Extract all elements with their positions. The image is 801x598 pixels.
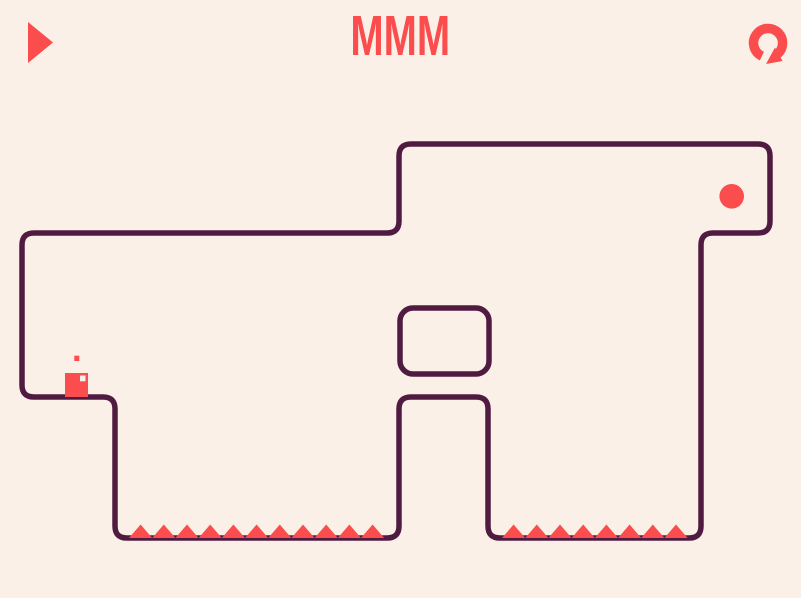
spike xyxy=(525,525,548,539)
spike xyxy=(315,525,338,539)
spike xyxy=(222,525,245,539)
spike xyxy=(664,525,687,539)
floor-spikes xyxy=(129,525,688,539)
player-trail-dot xyxy=(74,356,79,361)
left-floor-spikes xyxy=(129,525,384,539)
spike xyxy=(338,525,361,539)
spike xyxy=(502,525,525,539)
spike xyxy=(199,525,222,539)
spike xyxy=(641,525,664,539)
level-canvas xyxy=(0,0,801,598)
spike xyxy=(572,525,595,539)
spike xyxy=(548,525,571,539)
spike xyxy=(175,525,198,539)
spike xyxy=(595,525,618,539)
spike xyxy=(129,525,152,539)
spike xyxy=(152,525,175,539)
spike xyxy=(291,525,314,539)
spike xyxy=(245,525,268,539)
goal-dot xyxy=(719,184,744,209)
spike xyxy=(618,525,641,539)
spike xyxy=(361,525,384,539)
player-character xyxy=(65,373,88,397)
player-eye xyxy=(80,376,86,382)
game-screen: MMM xyxy=(0,0,801,598)
level-walls xyxy=(22,144,770,538)
floating-island xyxy=(400,308,489,374)
spike xyxy=(268,525,291,539)
